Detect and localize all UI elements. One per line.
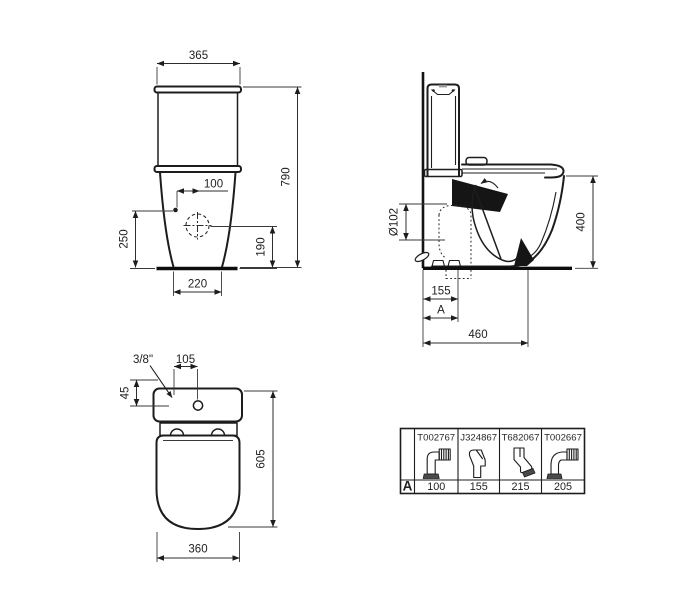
lid-clip-left bbox=[432, 89, 435, 92]
dim-label-100: 100 bbox=[204, 179, 223, 191]
curved-90-ribbed-connector-icon bbox=[547, 449, 578, 479]
cistern-lid-clip-line bbox=[432, 90, 456, 95]
dimension-variable-a: A bbox=[424, 305, 459, 319]
seat-cover-profile bbox=[462, 165, 564, 178]
dim-label-220: 220 bbox=[188, 279, 207, 291]
front-view: 365 790 100 250 190 bbox=[119, 50, 302, 296]
dim-label-250: 250 bbox=[119, 229, 131, 248]
flange bbox=[547, 474, 562, 479]
table-value: 100 bbox=[427, 481, 445, 493]
rib-lines bbox=[569, 449, 576, 460]
fixing-point-dot bbox=[173, 208, 178, 213]
bowl-right-side bbox=[222, 173, 236, 268]
pipe-body bbox=[551, 452, 567, 474]
dimension-base-width: 220 bbox=[174, 272, 222, 297]
rib-lines bbox=[442, 449, 449, 460]
pipe-body bbox=[514, 448, 532, 473]
dimension-inlet-offset: 105 bbox=[174, 354, 198, 400]
seat-cover-plan-outline bbox=[157, 436, 240, 530]
flange bbox=[523, 469, 536, 478]
table-value: 215 bbox=[511, 481, 529, 493]
table-value: 205 bbox=[554, 481, 572, 493]
dimension-outlet-diameter: Ø102 bbox=[389, 204, 448, 240]
table-row-header: A bbox=[403, 479, 413, 494]
plan-view: 3/8" 105 45 605 360 bbox=[120, 354, 278, 562]
dim-label-400: 400 bbox=[576, 212, 588, 231]
dimension-outlet-height: 190 bbox=[211, 227, 278, 269]
dim-label-790: 790 bbox=[281, 167, 293, 186]
dimension-length: 605 bbox=[228, 391, 278, 527]
pipe-body bbox=[469, 450, 485, 478]
pipe-body bbox=[427, 452, 439, 474]
outlet-connector-table: T002767 J324867 T682067 T002667 A 100 15… bbox=[401, 429, 585, 494]
cistern-lid-front bbox=[155, 87, 242, 93]
cistern-side-outline bbox=[428, 85, 460, 177]
table-header-code: J324867 bbox=[460, 433, 497, 444]
offset-straight-connector-icon bbox=[469, 450, 485, 478]
dimension-cistern-width: 365 bbox=[157, 50, 240, 85]
flush-flow-arrow bbox=[481, 181, 498, 188]
dimension-fixing-offset: 100 bbox=[177, 179, 228, 208]
dim-label-155: 155 bbox=[431, 286, 450, 298]
dimension-width: 360 bbox=[157, 532, 240, 562]
technical-drawing-page: 365 790 100 250 190 bbox=[0, 0, 679, 600]
diagram-canvas: 365 790 100 250 190 bbox=[0, 0, 679, 600]
table-header-code: T002767 bbox=[417, 433, 455, 444]
hinge-band bbox=[160, 423, 237, 436]
inlet-hole bbox=[193, 401, 202, 410]
lid-clip-right bbox=[452, 89, 455, 92]
tank-bowl-junction-fill bbox=[452, 179, 508, 212]
flange bbox=[423, 474, 439, 479]
dim-label-460: 460 bbox=[468, 329, 487, 341]
bowl-left-side bbox=[160, 173, 174, 268]
dimension-total-height: 790 bbox=[240, 87, 302, 268]
rear-foot-fill bbox=[514, 238, 534, 266]
hidden-outlet-pipe-dashed-left bbox=[439, 215, 446, 258]
dim-label-190: 190 bbox=[256, 237, 268, 256]
dimension-inlet-depth: 45 bbox=[120, 380, 170, 406]
dim-label-605: 605 bbox=[256, 449, 268, 468]
dim-label-45: 45 bbox=[120, 387, 132, 400]
dim-label-105: 105 bbox=[176, 354, 195, 366]
angled-45-connector-icon bbox=[514, 448, 535, 477]
table-header-code: T682067 bbox=[502, 433, 540, 444]
table-header-code: T002667 bbox=[544, 433, 582, 444]
cistern-lid-tab bbox=[439, 85, 447, 88]
dimension-outlet-distance: 155 bbox=[424, 286, 459, 300]
cistern-base-band bbox=[155, 166, 242, 172]
dim-label-inlet-thread: 3/8" bbox=[133, 354, 153, 366]
side-view: Ø102 155 A 460 400 bbox=[389, 72, 599, 347]
elbow-90-ribbed-connector-icon bbox=[423, 449, 450, 479]
dim-label-a: A bbox=[437, 305, 445, 317]
table-value: 155 bbox=[470, 481, 488, 493]
cistern-foot-band bbox=[425, 170, 463, 177]
hidden-outlet-below-floor-dashed bbox=[446, 270, 471, 279]
dim-label-365: 365 bbox=[189, 50, 208, 62]
dimension-seat-height: 400 bbox=[566, 176, 598, 268]
dim-label-o102: Ø102 bbox=[389, 208, 401, 236]
dim-label-360: 360 bbox=[188, 544, 207, 556]
